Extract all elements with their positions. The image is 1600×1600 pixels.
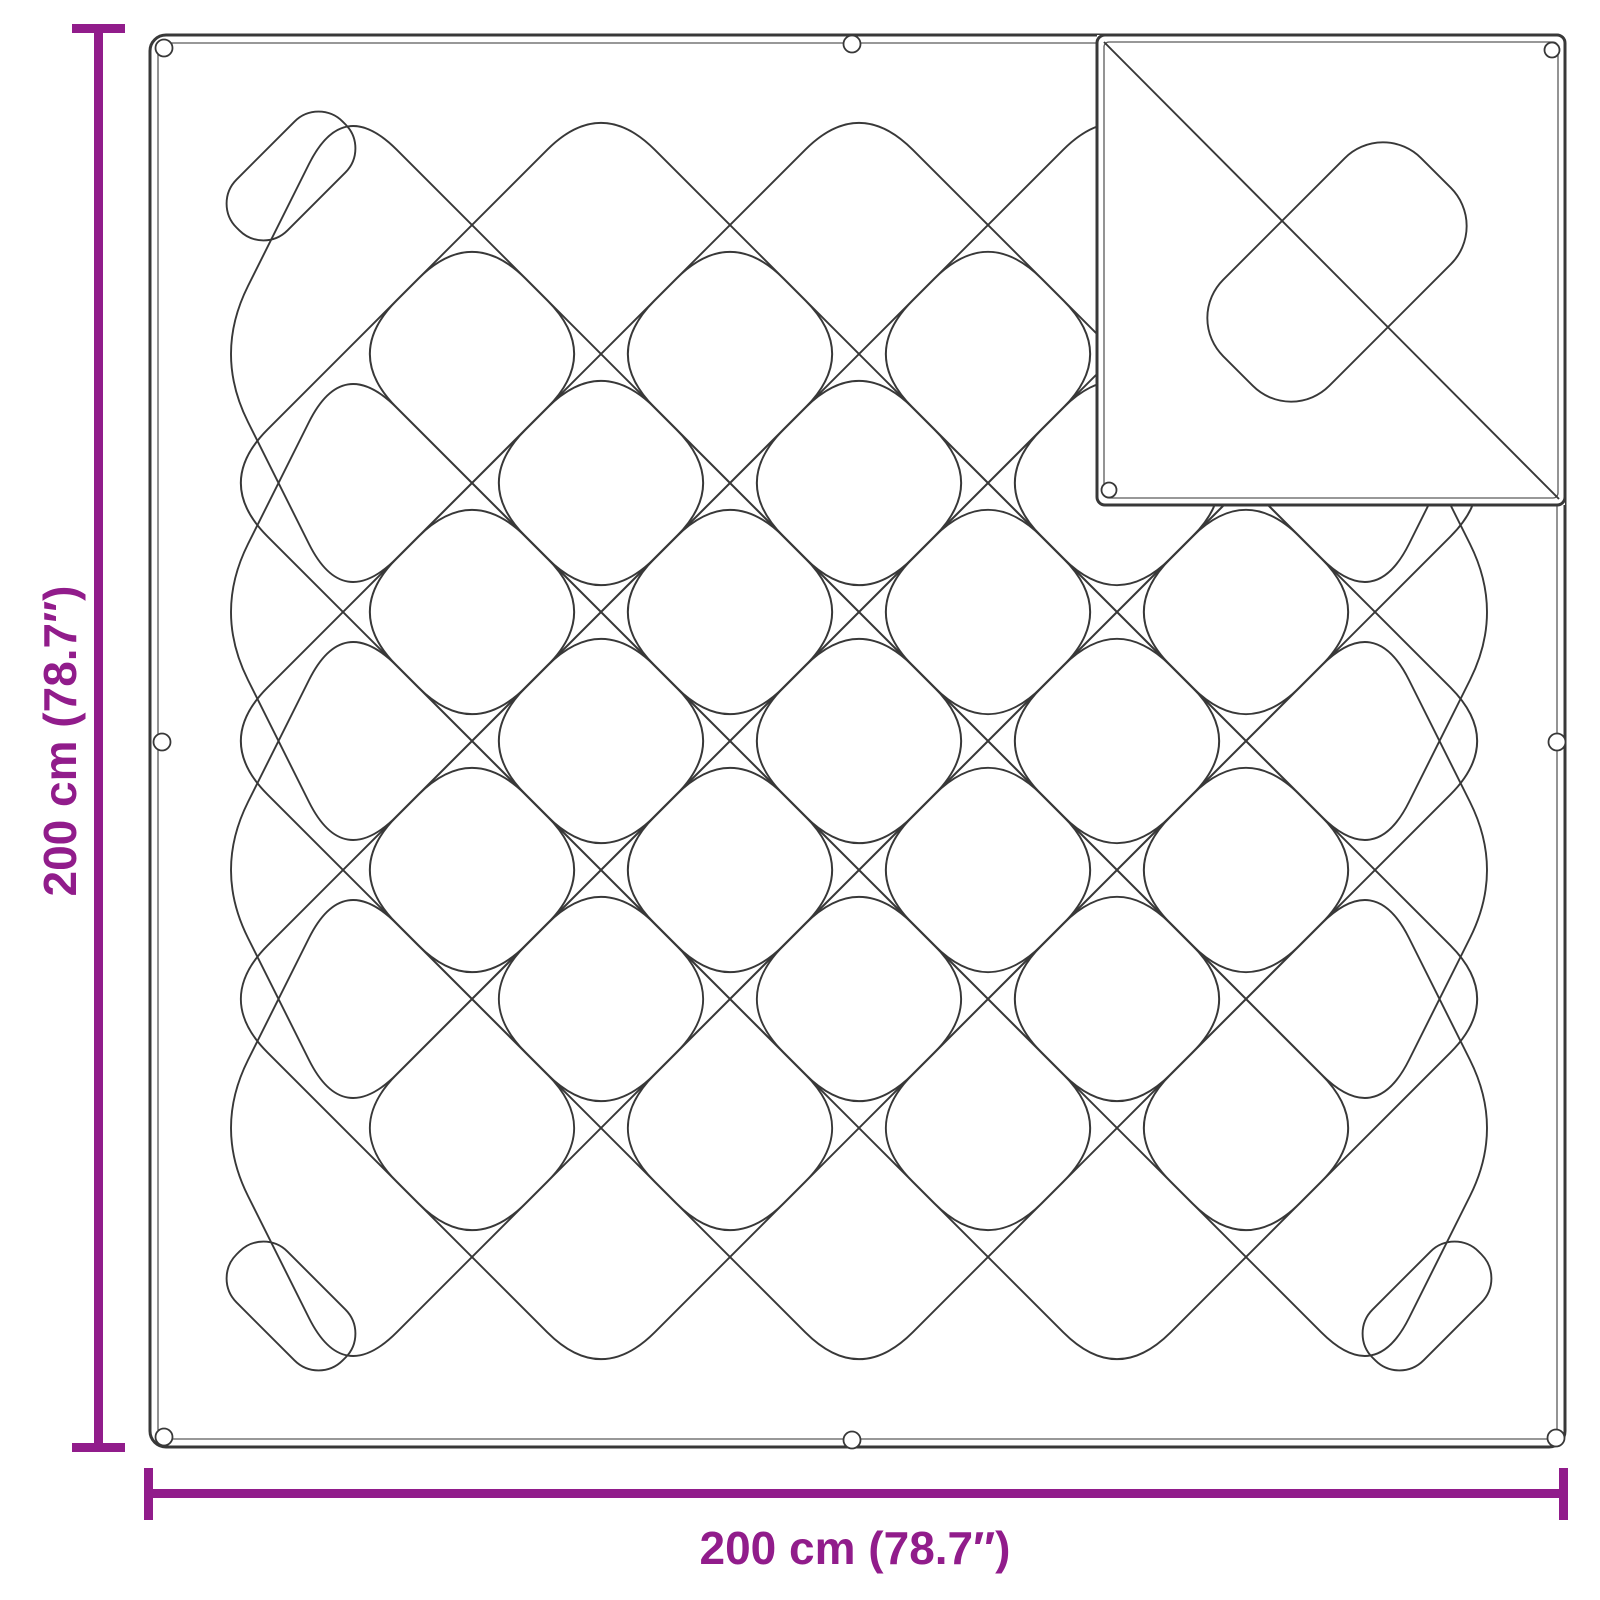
quilt-cell-outline xyxy=(231,126,574,582)
height-dimension-cap-top xyxy=(72,24,125,33)
diagram-canvas xyxy=(0,0,1600,1600)
width-dimension-label: 200 cm (78.7″) xyxy=(625,1521,1085,1575)
width-dimension-line xyxy=(148,1489,1564,1498)
grommet-icon xyxy=(154,734,171,751)
grommet-icon xyxy=(1549,734,1566,751)
corner-stitch-loop xyxy=(213,98,370,255)
quilt-cell-outline xyxy=(231,642,574,1098)
corner-stitch-loop xyxy=(1349,1228,1506,1385)
inset-grommet-icon xyxy=(1545,43,1560,58)
height-dimension-label: 200 cm (78.7″) xyxy=(33,511,87,971)
grommet-icon xyxy=(844,36,861,53)
inset-grommet-icon xyxy=(1102,483,1117,498)
quilt-cell-outline xyxy=(1144,900,1487,1356)
grommet-icon xyxy=(844,1432,861,1449)
corner-detail-inset xyxy=(1097,35,1565,505)
corner-stitch-loop xyxy=(213,1228,370,1385)
grommet-icon xyxy=(156,40,173,57)
width-dimension-cap-left xyxy=(144,1468,153,1520)
height-dimension-cap-bottom xyxy=(72,1443,125,1452)
quilt-cell-outline xyxy=(231,900,574,1356)
grommet-icon xyxy=(156,1429,173,1446)
quilt-cell-outline xyxy=(231,384,574,840)
quilt-cell-outline xyxy=(1144,642,1487,1098)
product-dimension-diagram: 200 cm (78.7″) 200 cm (78.7″) xyxy=(0,0,1600,1600)
height-dimension-line xyxy=(94,26,103,1450)
grommet-icon xyxy=(1548,1430,1565,1447)
width-dimension-cap-right xyxy=(1559,1468,1568,1520)
